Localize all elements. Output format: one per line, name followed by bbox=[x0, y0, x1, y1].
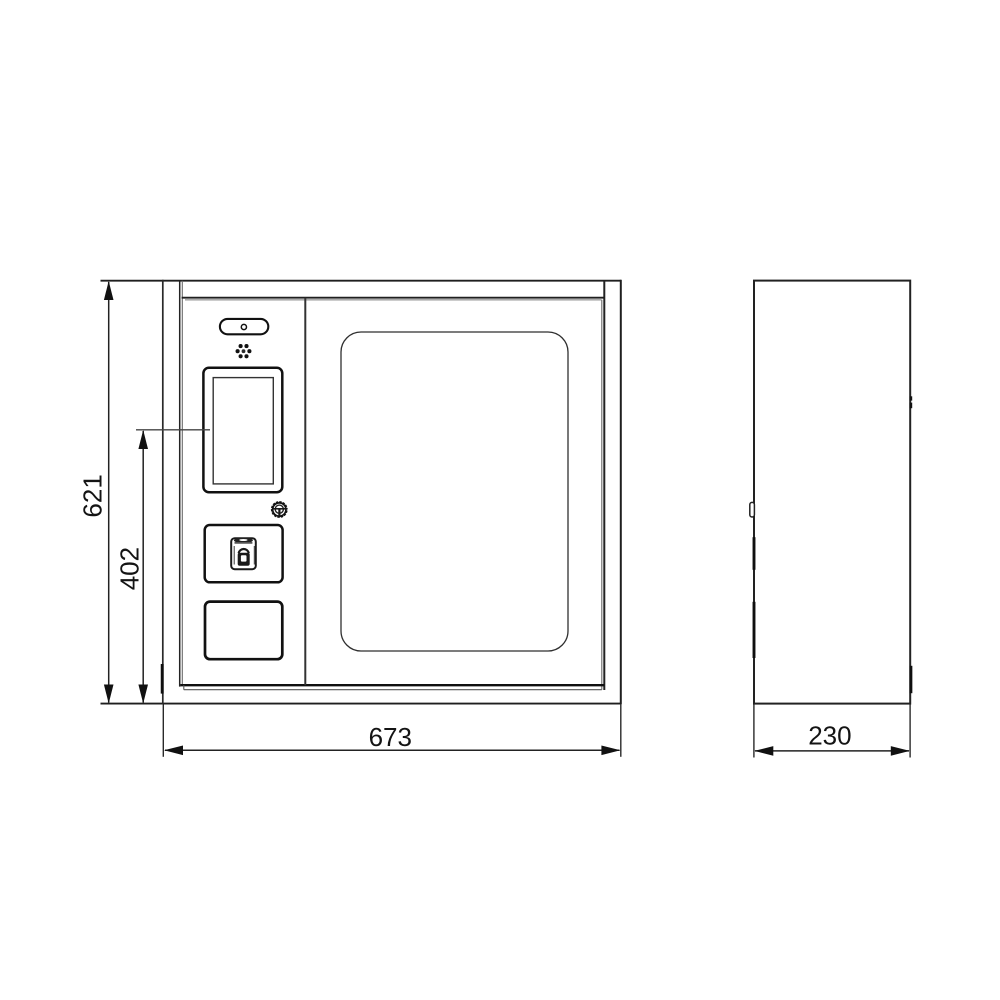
svg-text:402: 402 bbox=[114, 547, 144, 590]
svg-text:673: 673 bbox=[369, 722, 412, 752]
svg-text:230: 230 bbox=[808, 720, 851, 750]
svg-text:621: 621 bbox=[78, 474, 108, 517]
